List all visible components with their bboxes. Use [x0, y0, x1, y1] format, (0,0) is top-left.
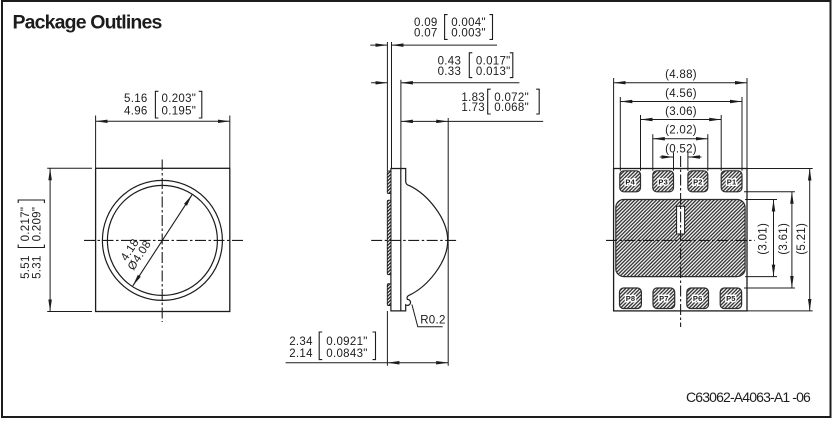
svg-text:5.16: 5.16: [124, 93, 148, 105]
svg-text:P4: P4: [625, 177, 635, 186]
svg-text:(3.61): (3.61): [778, 223, 790, 255]
svg-text:P6: P6: [693, 294, 703, 303]
svg-text:P2: P2: [693, 177, 703, 186]
svg-text:(5.21): (5.21): [796, 223, 808, 255]
svg-text:0.013": 0.013": [476, 66, 511, 78]
svg-text:(4.88): (4.88): [665, 69, 697, 81]
svg-text:0.0843": 0.0843": [326, 348, 367, 360]
svg-text:0.33: 0.33: [438, 66, 462, 78]
svg-text:P5: P5: [726, 294, 736, 303]
svg-text:4.96: 4.96: [124, 106, 148, 118]
svg-text:0.0921": 0.0921": [326, 336, 367, 348]
svg-text:Package Outlines: Package Outlines: [13, 12, 163, 34]
svg-text:0.209": 0.209": [32, 207, 44, 242]
svg-text:(3.01): (3.01): [758, 223, 770, 255]
svg-text:P1: P1: [727, 177, 737, 186]
svg-text:(3.06): (3.06): [665, 106, 697, 118]
svg-text:(0.52): (0.52): [665, 143, 697, 155]
svg-text:0.195": 0.195": [162, 106, 197, 118]
svg-text:P3: P3: [658, 177, 668, 186]
svg-text:2.34: 2.34: [289, 336, 313, 348]
svg-text:0.07: 0.07: [414, 28, 438, 40]
svg-text:2.14: 2.14: [289, 348, 313, 360]
svg-text:0.203": 0.203": [162, 93, 197, 105]
svg-text:5.31: 5.31: [32, 255, 44, 279]
svg-text:R0.2: R0.2: [420, 315, 446, 327]
svg-text:0.068": 0.068": [494, 102, 529, 114]
svg-text:0.217": 0.217": [20, 207, 32, 242]
svg-text:(4.56): (4.56): [665, 88, 697, 100]
svg-text:5.51: 5.51: [20, 255, 32, 279]
svg-text:(2.02): (2.02): [665, 125, 697, 137]
svg-text:P8: P8: [626, 294, 636, 303]
svg-text:0.003": 0.003": [451, 28, 486, 40]
svg-text:1.73: 1.73: [461, 102, 485, 114]
svg-text:P7: P7: [659, 294, 669, 303]
svg-text:C63062-A4063-A1 -06: C63062-A4063-A1 -06: [686, 389, 811, 405]
